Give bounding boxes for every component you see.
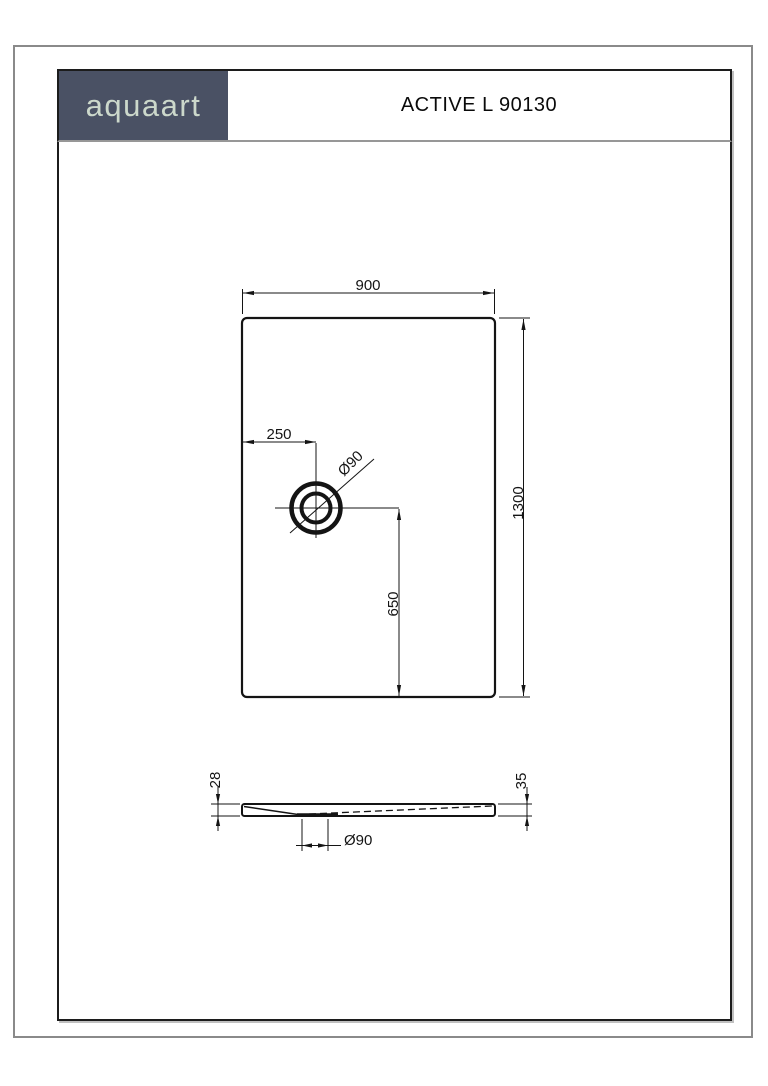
dimension-drain-diameter-side: Ø90 xyxy=(296,819,372,851)
technical-drawing: 900 1300 250 650 xyxy=(0,0,768,1086)
dimension-height-1300: 1300 xyxy=(499,318,530,697)
dim-label-drain-diameter-side: Ø90 xyxy=(344,832,372,849)
dim-label-650: 650 xyxy=(385,591,402,616)
drain-top-view: Ø90 xyxy=(275,443,399,538)
dimension-width-900: 900 xyxy=(243,277,495,314)
slope-line-right-hidden xyxy=(298,806,492,815)
dim-label-900: 900 xyxy=(355,277,380,294)
dim-label-drain-diameter-top: Ø90 xyxy=(335,448,367,480)
dimension-drain-offset-250: 250 xyxy=(243,426,316,444)
side-view: 28 35 Ø90 xyxy=(207,772,532,851)
tray-outline-side-view xyxy=(242,804,495,816)
dim-label-28: 28 xyxy=(207,772,224,789)
dimension-right-height-35: 35 xyxy=(498,773,532,831)
slope-line-left xyxy=(244,807,298,815)
dimension-drain-offset-650: 650 xyxy=(385,509,402,696)
top-view: 900 1300 250 650 xyxy=(242,277,530,697)
dim-label-250: 250 xyxy=(266,426,291,443)
dim-label-1300: 1300 xyxy=(510,486,527,519)
dimension-left-height-28: 28 xyxy=(207,772,240,831)
dim-label-35: 35 xyxy=(513,773,530,790)
